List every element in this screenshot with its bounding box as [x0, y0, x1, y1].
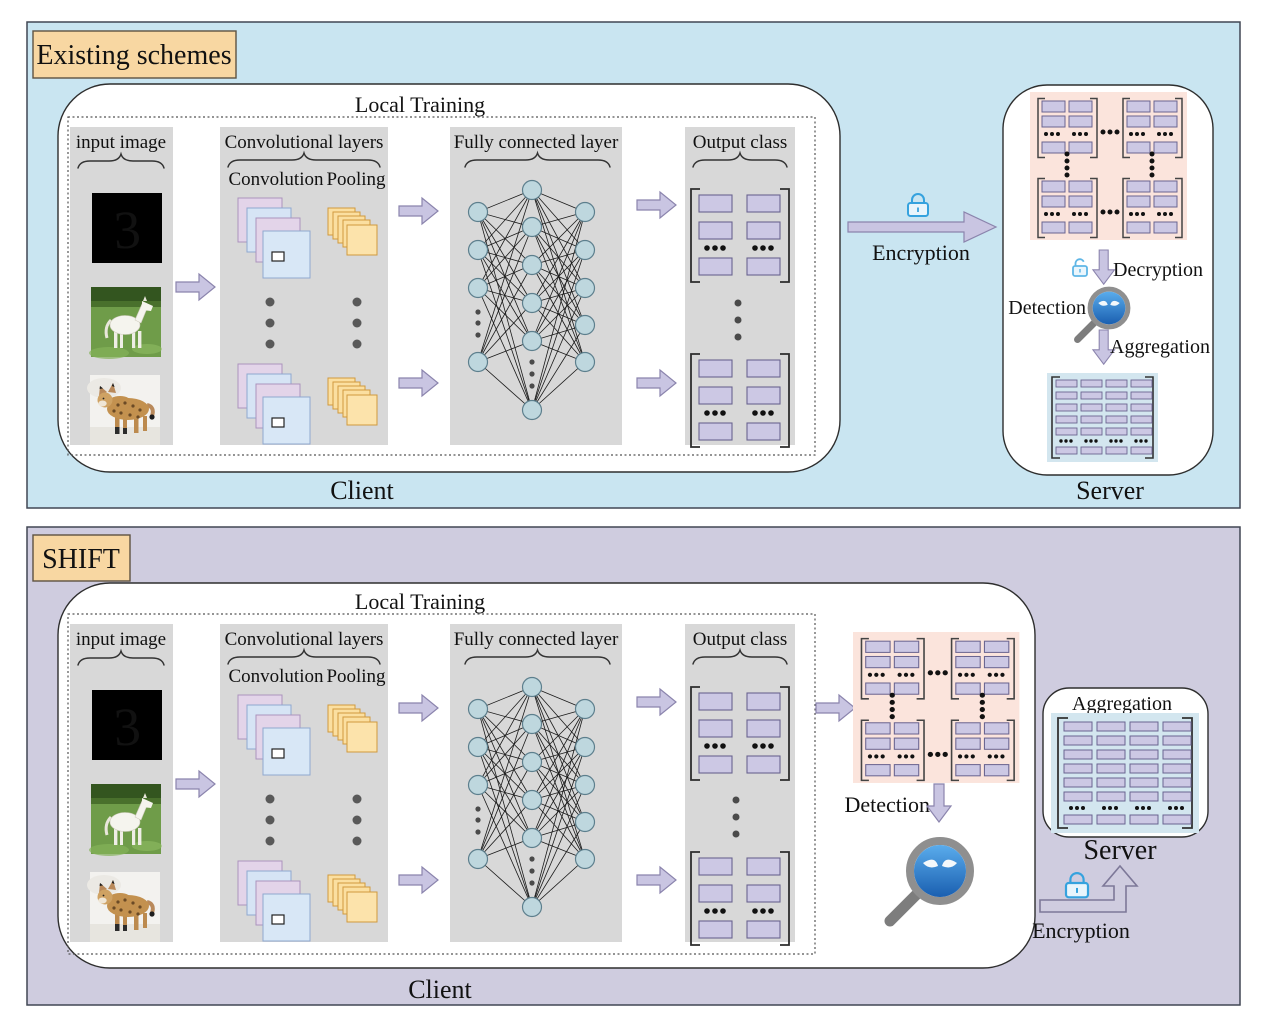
- client-label: Client: [330, 476, 394, 505]
- local-training-label: Local Training: [355, 589, 485, 614]
- convolution-label: Convolution: [228, 169, 324, 190]
- aggregation-label: Aggregation: [1110, 336, 1210, 358]
- fc-layer-label: Fully connected layer: [454, 629, 619, 650]
- encryption-label: Encryption: [1032, 918, 1130, 943]
- detection-label: Detection: [1008, 297, 1086, 319]
- pooling-label: Pooling: [326, 169, 386, 190]
- fc-layer-label: Fully connected layer: [454, 132, 619, 153]
- output-class-label: Output class: [693, 132, 787, 153]
- local-training-label: Local Training: [355, 92, 485, 117]
- panel-shift: SHIFT Local Training input image Convolu…: [27, 527, 1240, 1005]
- aggregation-label: Aggregation: [1072, 693, 1172, 715]
- detection-label: Detection: [844, 792, 930, 817]
- decryption-label: Decryption: [1113, 259, 1203, 281]
- client-label: Client: [408, 975, 472, 1004]
- pooling-label: Pooling: [326, 666, 386, 687]
- panel1-tag-label: Existing schemes: [36, 40, 231, 71]
- conv-layers-label: Convolutional layers: [225, 629, 384, 650]
- panel-existing-schemes: Existing schemes Local Training input im…: [27, 22, 1240, 508]
- conv-layers-label: Convolutional layers: [225, 132, 384, 153]
- output-class-label: Output class: [693, 629, 787, 650]
- server-label: Server: [1076, 476, 1144, 505]
- convolution-label: Convolution: [228, 666, 324, 687]
- figure-canvas: 3: [0, 0, 1267, 1035]
- panel2-tag-label: SHIFT: [42, 544, 120, 575]
- encryption-label: Encryption: [872, 240, 970, 265]
- input-image-label: input image: [76, 132, 166, 153]
- server-label: Server: [1083, 835, 1157, 866]
- input-image-label: input image: [76, 629, 166, 650]
